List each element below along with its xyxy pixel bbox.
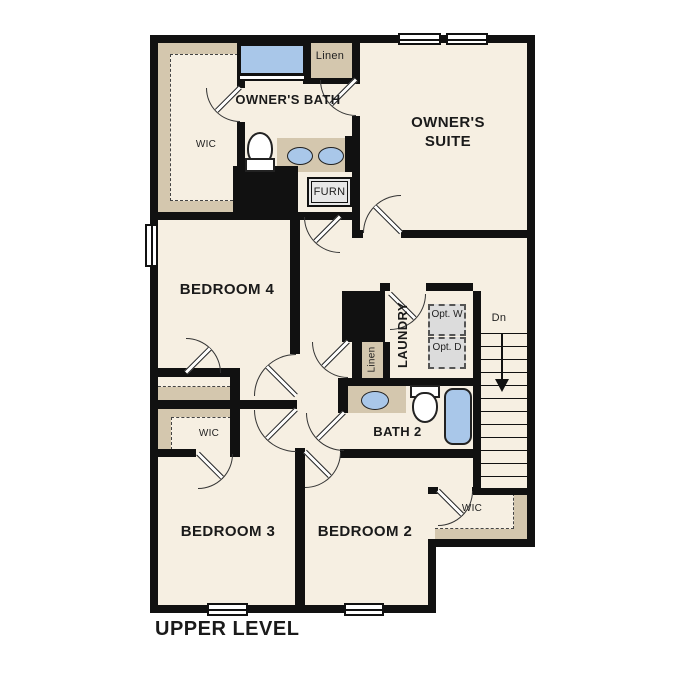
wall-suite-bottom-b — [401, 230, 535, 238]
bath2-tub — [444, 388, 472, 445]
window-pane-line — [346, 609, 382, 611]
owners-suite-label: OWNER'S SUITE — [388, 113, 508, 151]
wall-bed3-top-a — [158, 449, 196, 457]
wall-bath2-bottom — [340, 449, 477, 458]
wall-bed2-right — [428, 539, 436, 613]
owners-wic-floor — [170, 54, 238, 201]
window-suite-2 — [446, 33, 488, 45]
furn-box: FURN — [307, 177, 352, 207]
wall-right — [527, 35, 535, 547]
shower — [238, 43, 306, 76]
owners-sink-right — [318, 147, 344, 165]
bed4-closet-floor — [158, 377, 230, 387]
wall-stairs-left — [473, 291, 481, 488]
window-pane-line — [209, 609, 246, 611]
plan-title: UPPER LEVEL — [155, 621, 375, 637]
staircase — [481, 333, 527, 489]
owners-sink-left — [287, 147, 313, 165]
wall-left — [150, 35, 158, 613]
bath2-label: BATH 2 — [355, 424, 440, 440]
linen-upper-label: Linen — [308, 50, 352, 62]
opt-dryer-box: Opt. D — [428, 337, 466, 369]
opt-washer-box: Opt. W — [428, 304, 466, 336]
window-pane-line — [400, 39, 439, 41]
owners-bath-label: OWNER'S BATH — [232, 92, 344, 108]
wall-closet-wic-divider — [158, 400, 297, 409]
wall-laundry-top-a — [380, 283, 390, 291]
linen-hall-label: Linen — [367, 330, 378, 390]
wall-chase — [342, 291, 385, 342]
bed2-wic-label: WIC — [452, 503, 492, 514]
wall-bottom — [150, 605, 435, 613]
floor-plan-upper-level: Dn FURN Opt. W Opt. D — [0, 0, 687, 687]
furn-label: FURN — [314, 186, 346, 198]
wall-bed3-top-b — [233, 449, 240, 457]
wall-linen2-right — [383, 342, 390, 382]
owners-wic-label: WIC — [186, 139, 226, 150]
bedroom2-label: BEDROOM 2 — [297, 524, 433, 540]
wall-vanity-right — [345, 136, 360, 172]
bed4-closet-shelf — [158, 387, 230, 400]
shower-sill — [240, 76, 304, 81]
wall-suite-bottom-a — [352, 230, 363, 238]
stairs-dn-label: Dn — [484, 312, 514, 324]
wall-laundry-top-b — [426, 283, 473, 291]
stairs-arrow-line — [501, 333, 503, 381]
window-pane-line — [448, 39, 486, 41]
wall-stairs-bottom — [473, 488, 535, 495]
window-bedroom3 — [207, 603, 248, 616]
bed3-wic-label: WIC — [189, 428, 229, 439]
wall-wic2-bottom — [428, 539, 535, 547]
wall-closet-right — [230, 368, 240, 457]
wall-linen2-left — [352, 342, 362, 380]
window-bedroom4 — [145, 224, 158, 267]
stairs-arrow-head — [495, 379, 509, 392]
window-bedroom2 — [344, 603, 384, 616]
bedroom3-label: BEDROOM 3 — [159, 524, 297, 540]
wall-furn-left-block — [233, 166, 298, 212]
wall-bath-suite-a — [352, 43, 360, 80]
bedroom4-label: BEDROOM 4 — [158, 282, 296, 298]
bath2-toilet-bowl — [412, 392, 438, 423]
owners-toilet-tank — [245, 158, 275, 172]
window-suite-1 — [398, 33, 441, 45]
window-pane-line — [151, 226, 153, 265]
bath2-sink — [361, 391, 389, 410]
laundry-label: LAUNDRY — [395, 285, 411, 385]
